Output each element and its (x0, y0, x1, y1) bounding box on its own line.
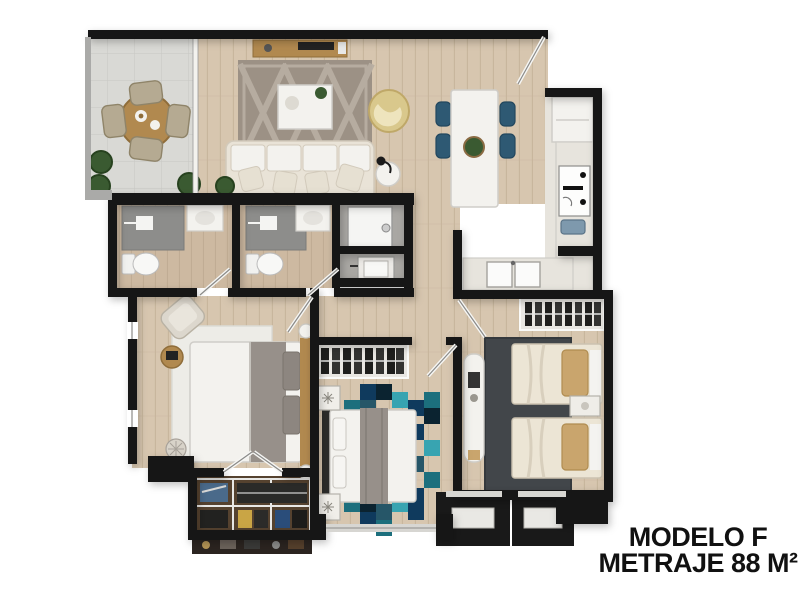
plant (90, 151, 112, 173)
desk-item (470, 394, 478, 402)
plate (150, 120, 160, 130)
side-table (376, 162, 400, 186)
plan-title: MODELO F METRAJE 88 M² (598, 522, 798, 578)
corridor-floor (410, 204, 460, 345)
sink-basin (487, 262, 512, 287)
outdoor-chair (129, 80, 163, 106)
pillow (562, 424, 588, 470)
nightstand (316, 386, 340, 410)
window (446, 491, 502, 497)
pillow (562, 350, 588, 396)
sink-basin (515, 262, 540, 287)
duvet (250, 342, 286, 462)
book (166, 351, 178, 360)
toilet (122, 253, 159, 275)
basin (303, 211, 323, 225)
terrace-railing (85, 37, 91, 195)
folded-clothes (238, 510, 252, 528)
terrace-railing (85, 190, 112, 200)
desk-monitor (468, 372, 480, 388)
tray (285, 96, 299, 110)
bedroom-2-bed (322, 408, 416, 504)
walk-in-closet (192, 479, 312, 554)
folded-clothes (254, 510, 268, 528)
headboard (322, 410, 330, 502)
decor-item (338, 42, 346, 54)
small-appliance (561, 220, 585, 234)
plant (216, 177, 234, 195)
luggage (200, 510, 228, 528)
tv (298, 42, 334, 50)
single-bed (512, 344, 602, 404)
hanging-clothes (237, 483, 307, 503)
dining-chair (500, 102, 515, 126)
faucet (511, 261, 515, 265)
bed-runner (360, 408, 388, 504)
single-bed (512, 418, 602, 478)
toilet (246, 253, 283, 275)
shower-head (260, 216, 277, 230)
dining-chair (436, 134, 451, 158)
sofa (226, 141, 374, 201)
dining-chair (500, 134, 515, 158)
outdoor-chair (165, 104, 191, 138)
throw-pillow (272, 170, 297, 195)
desk (464, 354, 484, 462)
closet-hanging-clothes (316, 344, 408, 378)
outdoor-chair (101, 104, 127, 138)
outdoor-chair (129, 136, 163, 162)
pillow (283, 396, 300, 434)
basin (195, 211, 215, 225)
folded-clothes (292, 510, 307, 528)
oven-stack (559, 166, 590, 216)
floor-plan: MODELO F METRAJE 88 M² (0, 0, 800, 600)
pillow (333, 418, 346, 450)
pillow (590, 424, 601, 470)
nightstand (570, 396, 600, 416)
floor-plan-page: MODELO F METRAJE 88 M² (0, 0, 800, 600)
folded-clothes (275, 510, 290, 528)
shower-head (136, 216, 153, 230)
window-boxes (436, 492, 574, 546)
pillow (333, 456, 346, 488)
pillow (283, 352, 300, 390)
desk-item (468, 450, 480, 460)
sliding-door-frame (193, 37, 198, 195)
table-plant (315, 87, 327, 99)
window (518, 491, 566, 497)
throw-pillow (238, 166, 265, 193)
area-label: METRAJE 88 M² (598, 548, 798, 578)
dining-chair (436, 102, 451, 126)
master-bed (190, 324, 313, 479)
decor-item (264, 44, 272, 52)
throw-pillow (304, 170, 329, 195)
closet-hanging-clothes (520, 298, 604, 330)
pillow (590, 350, 601, 396)
bowl (139, 114, 144, 119)
accent-armchair (369, 90, 409, 132)
